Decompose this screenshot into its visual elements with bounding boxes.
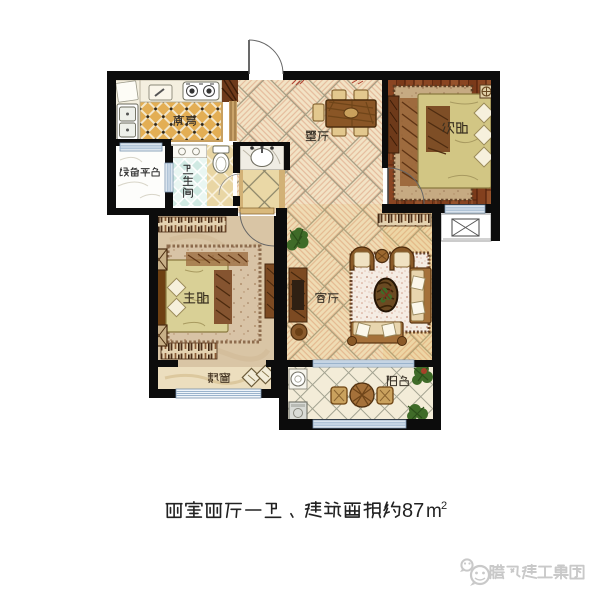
svg-text:2: 2 [441, 500, 447, 512]
svg-text:m: m [426, 501, 442, 522]
svg-text:87: 87 [402, 500, 424, 522]
